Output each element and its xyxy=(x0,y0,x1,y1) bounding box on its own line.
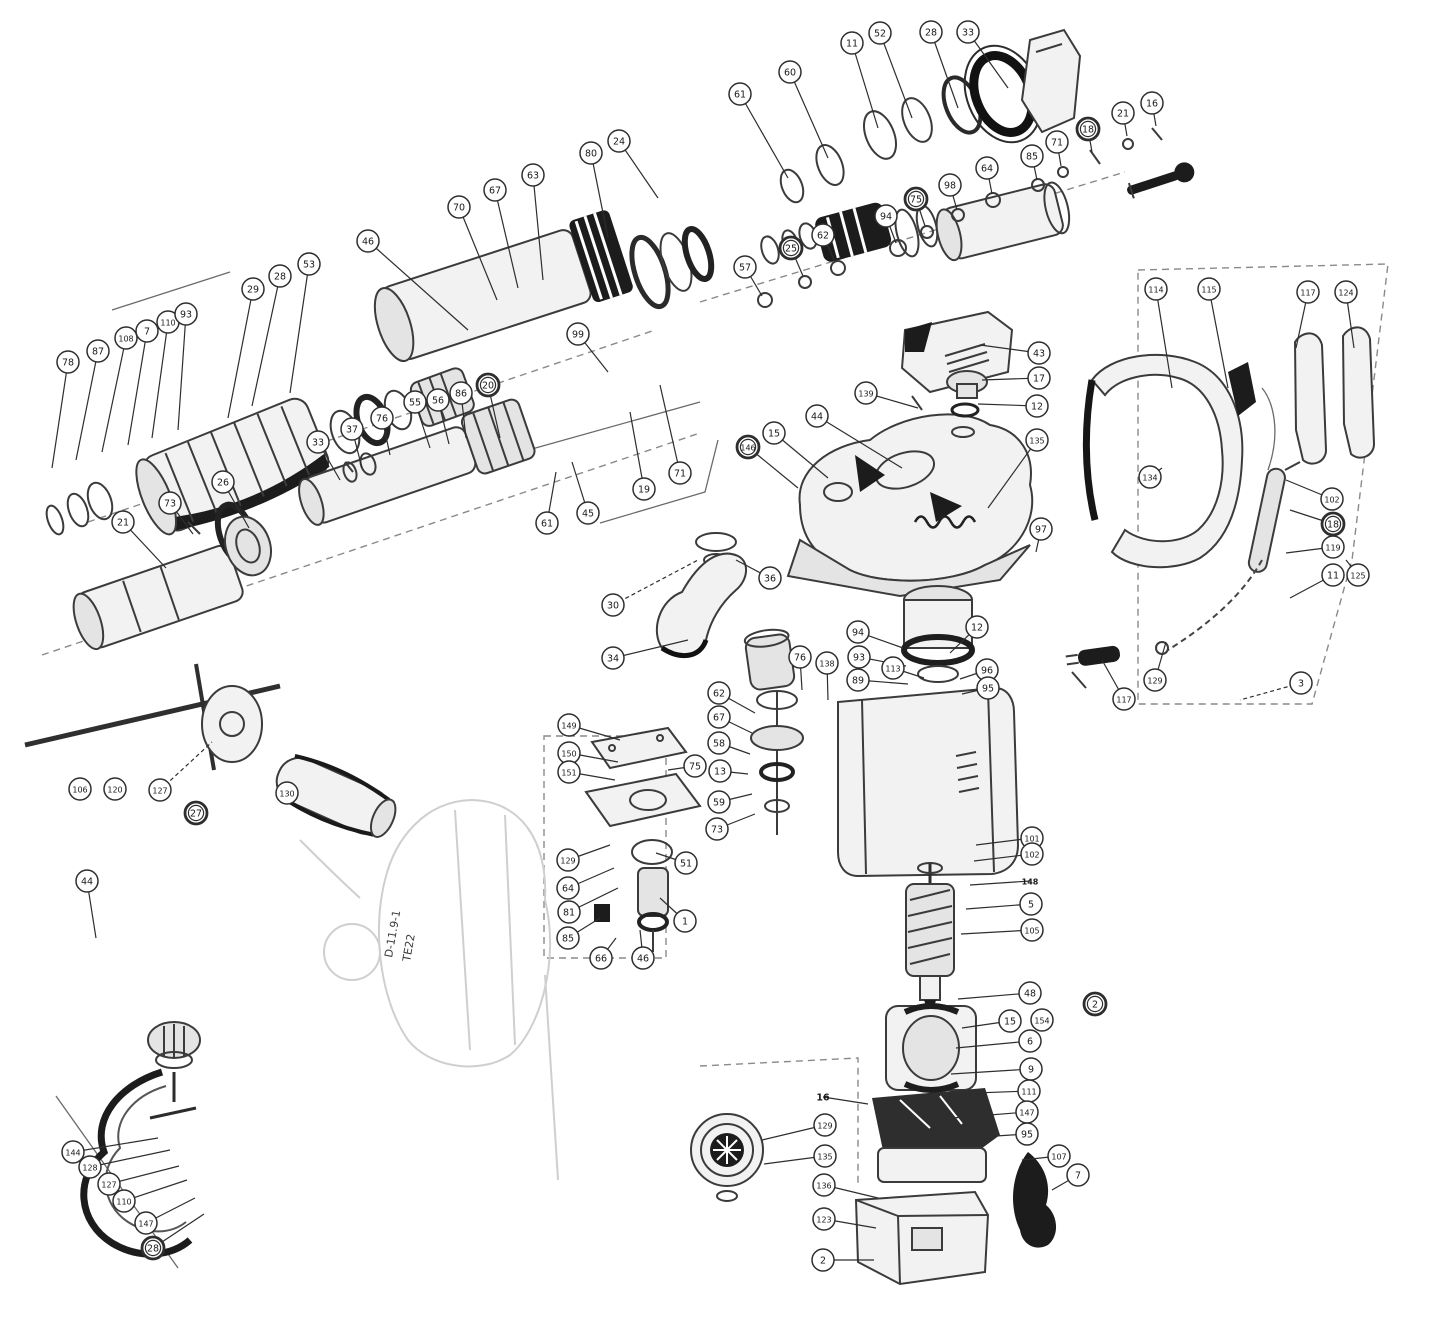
svg-text:60: 60 xyxy=(784,68,796,79)
svg-text:95: 95 xyxy=(1021,1130,1033,1141)
svg-text:61: 61 xyxy=(734,90,746,101)
svg-text:78: 78 xyxy=(62,358,74,369)
svg-text:71: 71 xyxy=(1051,138,1063,149)
callout-2: 2 xyxy=(1084,993,1106,1015)
svg-text:97: 97 xyxy=(1035,525,1047,536)
svg-text:85: 85 xyxy=(1026,152,1038,163)
svg-text:33: 33 xyxy=(962,28,974,39)
callout-12: 12 xyxy=(978,395,1048,417)
svg-text:119: 119 xyxy=(1325,544,1340,553)
part-cylinder-cap xyxy=(904,586,972,682)
svg-text:21: 21 xyxy=(117,518,129,529)
callout-125: 125 xyxy=(1346,560,1369,586)
svg-text:81: 81 xyxy=(563,908,575,919)
callout-146: 146 xyxy=(737,436,798,488)
svg-text:94: 94 xyxy=(880,212,892,223)
part-side-handle xyxy=(25,664,403,846)
stamp-text: D-11.9-1 TE22 xyxy=(382,909,418,963)
svg-text:130: 130 xyxy=(279,790,294,799)
callout-28: 28 xyxy=(920,21,958,108)
part-brush-plate xyxy=(872,1088,1000,1182)
svg-text:129: 129 xyxy=(1147,677,1162,686)
callout-15: 15 xyxy=(763,422,828,478)
svg-text:117: 117 xyxy=(1116,696,1131,705)
callout-27: 27 xyxy=(185,802,207,824)
svg-text:94: 94 xyxy=(852,628,864,639)
svg-text:107: 107 xyxy=(1051,1153,1066,1162)
svg-text:15: 15 xyxy=(768,429,780,440)
svg-text:64: 64 xyxy=(981,164,993,175)
part-field-coil xyxy=(886,1006,976,1090)
part-handle xyxy=(1086,355,1242,567)
svg-text:62: 62 xyxy=(713,689,725,700)
callout-129: 129 xyxy=(557,845,610,871)
parts-diagram-page: D-11.9-1 TE22 78871087110932928534670676… xyxy=(0,0,1444,1330)
svg-text:73: 73 xyxy=(164,499,176,510)
callout-24: 24 xyxy=(608,130,658,198)
svg-text:24: 24 xyxy=(613,137,625,148)
callout-3: 3 xyxy=(1240,672,1312,700)
part-front-rings xyxy=(43,479,117,536)
svg-text:20: 20 xyxy=(482,381,494,392)
callout-64: 64 xyxy=(976,157,998,194)
callout-71: 71 xyxy=(660,385,691,484)
callout-102: 102 xyxy=(1286,480,1343,510)
callout-58: 58 xyxy=(708,732,750,754)
svg-text:16: 16 xyxy=(1146,99,1158,110)
svg-text:37: 37 xyxy=(346,425,358,436)
part-piston-small xyxy=(744,627,796,691)
svg-text:75: 75 xyxy=(689,762,701,773)
callout-148: 148 xyxy=(970,878,1039,887)
svg-text:148: 148 xyxy=(1022,878,1039,887)
svg-text:76: 76 xyxy=(794,653,806,664)
svg-text:102: 102 xyxy=(1324,496,1339,505)
callout-11: 11 xyxy=(1290,564,1344,598)
svg-text:15: 15 xyxy=(1004,1017,1016,1028)
callout-127: 127 xyxy=(149,742,212,801)
svg-text:59: 59 xyxy=(713,798,725,809)
callout-60: 60 xyxy=(779,61,828,158)
svg-text:146: 146 xyxy=(740,444,755,453)
svg-text:56: 56 xyxy=(432,396,444,407)
svg-text:55: 55 xyxy=(409,398,421,409)
part-switch-box xyxy=(856,1192,988,1284)
callout-134: 134 xyxy=(1139,466,1162,488)
part-clutch-stack xyxy=(751,690,803,835)
callout-129: 129 xyxy=(1144,642,1166,691)
svg-text:85: 85 xyxy=(562,934,574,945)
exploded-parts-diagram: D-11.9-1 TE22 78871087110932928534670676… xyxy=(0,0,1444,1330)
svg-text:139: 139 xyxy=(858,390,873,399)
svg-text:64: 64 xyxy=(562,884,574,895)
callout-29: 29 xyxy=(228,278,264,418)
callout-7: 7 xyxy=(1052,1164,1089,1190)
svg-text:12: 12 xyxy=(971,623,983,634)
svg-text:44: 44 xyxy=(81,877,93,888)
svg-text:87: 87 xyxy=(92,347,104,358)
callout-52: 52 xyxy=(869,22,912,118)
svg-text:106: 106 xyxy=(72,786,87,795)
svg-text:73: 73 xyxy=(711,825,723,836)
stamp-line1: D-11.9-1 xyxy=(382,909,403,958)
svg-text:120: 120 xyxy=(107,786,122,795)
svg-text:27: 27 xyxy=(190,809,202,820)
svg-text:115: 115 xyxy=(1201,286,1216,295)
callout-128: 128 xyxy=(79,1150,170,1178)
svg-text:67: 67 xyxy=(713,713,725,724)
svg-text:98: 98 xyxy=(944,181,956,192)
svg-text:89: 89 xyxy=(852,676,864,687)
svg-text:150: 150 xyxy=(561,750,576,759)
svg-text:110: 110 xyxy=(160,319,175,328)
svg-text:138: 138 xyxy=(819,660,834,669)
svg-text:25: 25 xyxy=(785,244,797,255)
svg-text:105: 105 xyxy=(1024,927,1039,936)
callout-5: 5 xyxy=(966,893,1042,915)
svg-text:102: 102 xyxy=(1024,851,1039,860)
svg-text:151: 151 xyxy=(561,769,576,778)
callout-139: 139 xyxy=(855,382,918,408)
svg-text:134: 134 xyxy=(1142,474,1157,483)
part-armature xyxy=(906,862,954,1020)
svg-text:129: 129 xyxy=(817,1122,832,1131)
svg-text:43: 43 xyxy=(1033,349,1045,360)
svg-text:86: 86 xyxy=(455,389,467,400)
svg-text:127: 127 xyxy=(101,1181,116,1190)
callout-18: 18 xyxy=(1290,510,1344,535)
callout-21: 21 xyxy=(1112,102,1134,136)
svg-text:48: 48 xyxy=(1024,989,1036,1000)
svg-text:45: 45 xyxy=(582,509,594,520)
callout-138: 138 xyxy=(816,652,838,700)
stamp-line2: TE22 xyxy=(400,933,418,963)
svg-text:144: 144 xyxy=(65,1149,80,1158)
svg-text:58: 58 xyxy=(713,739,725,750)
part-side-plates xyxy=(1295,327,1374,463)
callout-53: 53 xyxy=(290,253,320,393)
svg-text:114: 114 xyxy=(1148,286,1163,295)
svg-text:71: 71 xyxy=(674,469,686,480)
svg-text:154: 154 xyxy=(1034,1017,1049,1026)
svg-text:76: 76 xyxy=(376,414,388,425)
callout-117: 117 xyxy=(1102,660,1135,710)
part-cord-guard xyxy=(1247,467,1286,573)
svg-text:111: 111 xyxy=(1021,1088,1036,1097)
callout-11: 11 xyxy=(841,32,878,128)
svg-text:3: 3 xyxy=(1298,679,1304,690)
svg-text:18: 18 xyxy=(1327,520,1339,531)
callout-45: 45 xyxy=(572,462,599,524)
callout-66: 66 xyxy=(590,938,616,969)
callout-127: 127 xyxy=(98,1166,179,1195)
svg-text:7: 7 xyxy=(1075,1171,1081,1182)
svg-text:36: 36 xyxy=(764,574,776,585)
callout-layer: 7887108711093292853467067638024616011522… xyxy=(52,21,1369,1271)
svg-text:21: 21 xyxy=(1117,109,1129,120)
callout-59: 59 xyxy=(708,791,752,813)
callout-144: 144 xyxy=(62,1138,158,1163)
svg-text:26: 26 xyxy=(217,478,229,489)
callout-98: 98 xyxy=(939,174,961,210)
svg-text:129: 129 xyxy=(560,857,575,866)
svg-text:17: 17 xyxy=(1033,374,1045,385)
part-plug xyxy=(1065,645,1121,668)
svg-text:29: 29 xyxy=(247,285,259,296)
callout-147: 147 xyxy=(135,1198,195,1234)
svg-text:13: 13 xyxy=(714,767,726,778)
svg-text:135: 135 xyxy=(1029,437,1044,446)
svg-text:46: 46 xyxy=(362,237,374,248)
svg-text:34: 34 xyxy=(607,654,619,665)
callout-97: 97 xyxy=(1030,518,1052,552)
callout-16: 16 xyxy=(1141,92,1163,126)
svg-text:33: 33 xyxy=(312,438,324,449)
svg-text:2: 2 xyxy=(1092,1000,1098,1011)
svg-text:61: 61 xyxy=(541,519,553,530)
svg-text:147: 147 xyxy=(138,1220,153,1229)
callout-44: 44 xyxy=(76,870,98,938)
callout-94: 94 xyxy=(847,621,903,648)
svg-text:128: 128 xyxy=(82,1164,97,1173)
svg-text:63: 63 xyxy=(527,171,539,182)
callout-16: 16 xyxy=(816,1093,868,1105)
callout-48: 48 xyxy=(958,982,1041,1004)
callout-135: 135 xyxy=(764,1145,836,1167)
callout-85: 85 xyxy=(1021,145,1043,180)
svg-text:80: 80 xyxy=(585,149,597,160)
callout-130: 130 xyxy=(276,782,298,804)
svg-text:66: 66 xyxy=(595,954,607,965)
part-barrel-rings xyxy=(625,226,717,311)
svg-text:28: 28 xyxy=(274,272,286,283)
callout-120: 120 xyxy=(104,778,126,800)
callout-129: 129 xyxy=(762,1114,836,1140)
svg-text:93: 93 xyxy=(853,653,865,664)
svg-text:11: 11 xyxy=(846,39,858,50)
callout-46: 46 xyxy=(632,930,654,969)
ghost-tool-body xyxy=(300,800,550,1066)
svg-text:2: 2 xyxy=(820,1256,826,1267)
svg-text:1: 1 xyxy=(682,917,688,928)
svg-text:70: 70 xyxy=(453,203,465,214)
svg-text:44: 44 xyxy=(811,412,823,423)
svg-text:30: 30 xyxy=(607,601,619,612)
svg-text:53: 53 xyxy=(303,260,315,271)
callout-154: 154 xyxy=(1031,1009,1053,1031)
svg-text:11: 11 xyxy=(1327,571,1339,582)
svg-text:19: 19 xyxy=(638,485,650,496)
svg-text:110: 110 xyxy=(116,1198,131,1207)
svg-text:9: 9 xyxy=(1028,1065,1034,1076)
svg-text:28: 28 xyxy=(925,28,937,39)
part-crank-lever xyxy=(657,533,746,656)
callout-13: 13 xyxy=(709,760,748,782)
svg-text:127: 127 xyxy=(152,787,167,796)
svg-text:52: 52 xyxy=(874,29,886,40)
svg-text:46: 46 xyxy=(637,954,649,965)
svg-text:62: 62 xyxy=(817,231,829,242)
svg-text:12: 12 xyxy=(1031,402,1043,413)
callout-85: 85 xyxy=(557,918,600,949)
svg-text:67: 67 xyxy=(489,186,501,197)
svg-text:93: 93 xyxy=(180,310,192,321)
part-trigger xyxy=(1013,1152,1056,1248)
svg-text:96: 96 xyxy=(981,666,993,677)
callout-105: 105 xyxy=(961,919,1043,941)
svg-text:117: 117 xyxy=(1300,289,1315,298)
callout-106: 106 xyxy=(69,778,91,800)
svg-text:28: 28 xyxy=(147,1244,159,1255)
callout-119: 119 xyxy=(1286,536,1344,558)
callout-93: 93 xyxy=(175,303,197,430)
svg-text:123: 123 xyxy=(816,1216,831,1225)
svg-text:124: 124 xyxy=(1338,289,1353,298)
svg-text:57: 57 xyxy=(739,263,751,274)
callout-73: 73 xyxy=(706,814,755,840)
svg-text:147: 147 xyxy=(1019,1109,1034,1118)
svg-text:108: 108 xyxy=(118,335,133,344)
svg-text:95: 95 xyxy=(982,684,994,695)
callout-78: 78 xyxy=(52,351,79,468)
callout-71: 71 xyxy=(1046,131,1068,166)
callout-67: 67 xyxy=(708,706,752,733)
callout-136: 136 xyxy=(813,1174,878,1198)
svg-text:149: 149 xyxy=(561,722,576,731)
svg-text:125: 125 xyxy=(1350,572,1365,581)
svg-text:16: 16 xyxy=(816,1093,830,1104)
svg-text:99: 99 xyxy=(572,330,584,341)
svg-text:113: 113 xyxy=(885,665,900,674)
svg-text:101: 101 xyxy=(1024,835,1039,844)
svg-text:18: 18 xyxy=(1082,125,1094,136)
part-fan xyxy=(691,1114,763,1201)
callout-61: 61 xyxy=(536,472,558,534)
svg-text:5: 5 xyxy=(1028,900,1034,911)
part-motor-housing xyxy=(838,688,1018,876)
svg-text:7: 7 xyxy=(144,327,150,338)
part-main-barrel xyxy=(365,209,634,370)
callout-25: 25 xyxy=(780,237,803,276)
part-bolt xyxy=(1124,160,1197,201)
svg-text:51: 51 xyxy=(680,859,692,870)
svg-text:6: 6 xyxy=(1027,1037,1033,1048)
part-gear-housing xyxy=(788,396,1032,596)
svg-text:136: 136 xyxy=(816,1182,831,1191)
callout-18: 18 xyxy=(1077,118,1099,152)
svg-text:135: 135 xyxy=(817,1153,832,1162)
svg-text:75: 75 xyxy=(910,195,922,206)
callout-61: 61 xyxy=(729,83,788,178)
